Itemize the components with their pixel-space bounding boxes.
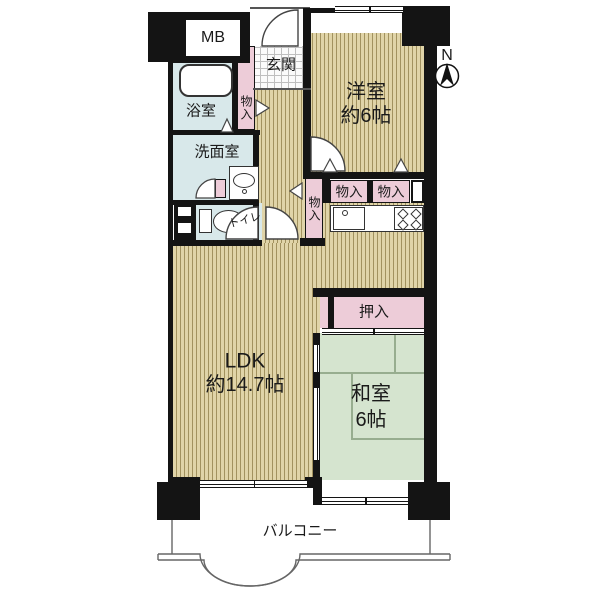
washroom-door-swing [196, 179, 215, 198]
storage-a-label: 物入 [240, 95, 252, 121]
japanese-room-label: 和室 [351, 384, 391, 404]
storage-d-door-icon [394, 159, 408, 172]
balcony-label: バルコニー [263, 524, 338, 539]
ldk-size: 約14.7帖 [206, 375, 285, 395]
plan-overlay [0, 0, 600, 600]
bathroom-label: 浴室 [186, 104, 216, 119]
floor-plan: MB 玄関 洋室 約6帖 浴室 物入 洗面室 トイレ 物入 物入 物入 LDK … [0, 0, 600, 600]
bath-folding-door-icon [221, 119, 233, 132]
entrance-door-swing [262, 10, 298, 46]
ldk-label: LDK [225, 351, 266, 372]
storage-b-door-icon [290, 183, 302, 199]
storage-c-label: 物入 [336, 185, 363, 199]
japanese-room-size: 6帖 [355, 410, 386, 430]
storage-b-label: 物入 [308, 196, 320, 222]
meter-box-label: MB [201, 30, 225, 46]
compass-north-label: N [441, 48, 453, 64]
entrance-label: 玄関 [266, 58, 296, 73]
western-room-size: 約6帖 [340, 106, 391, 126]
storage-a-door-icon [256, 100, 269, 116]
ldk-door-swing [266, 207, 298, 239]
washroom-label: 洗面室 [194, 145, 239, 160]
balcony-rail-outer [158, 554, 450, 586]
western-room-label: 洋室 [346, 82, 386, 102]
futon-closet-label: 押入 [359, 305, 389, 320]
storage-d-label: 物入 [378, 185, 405, 199]
